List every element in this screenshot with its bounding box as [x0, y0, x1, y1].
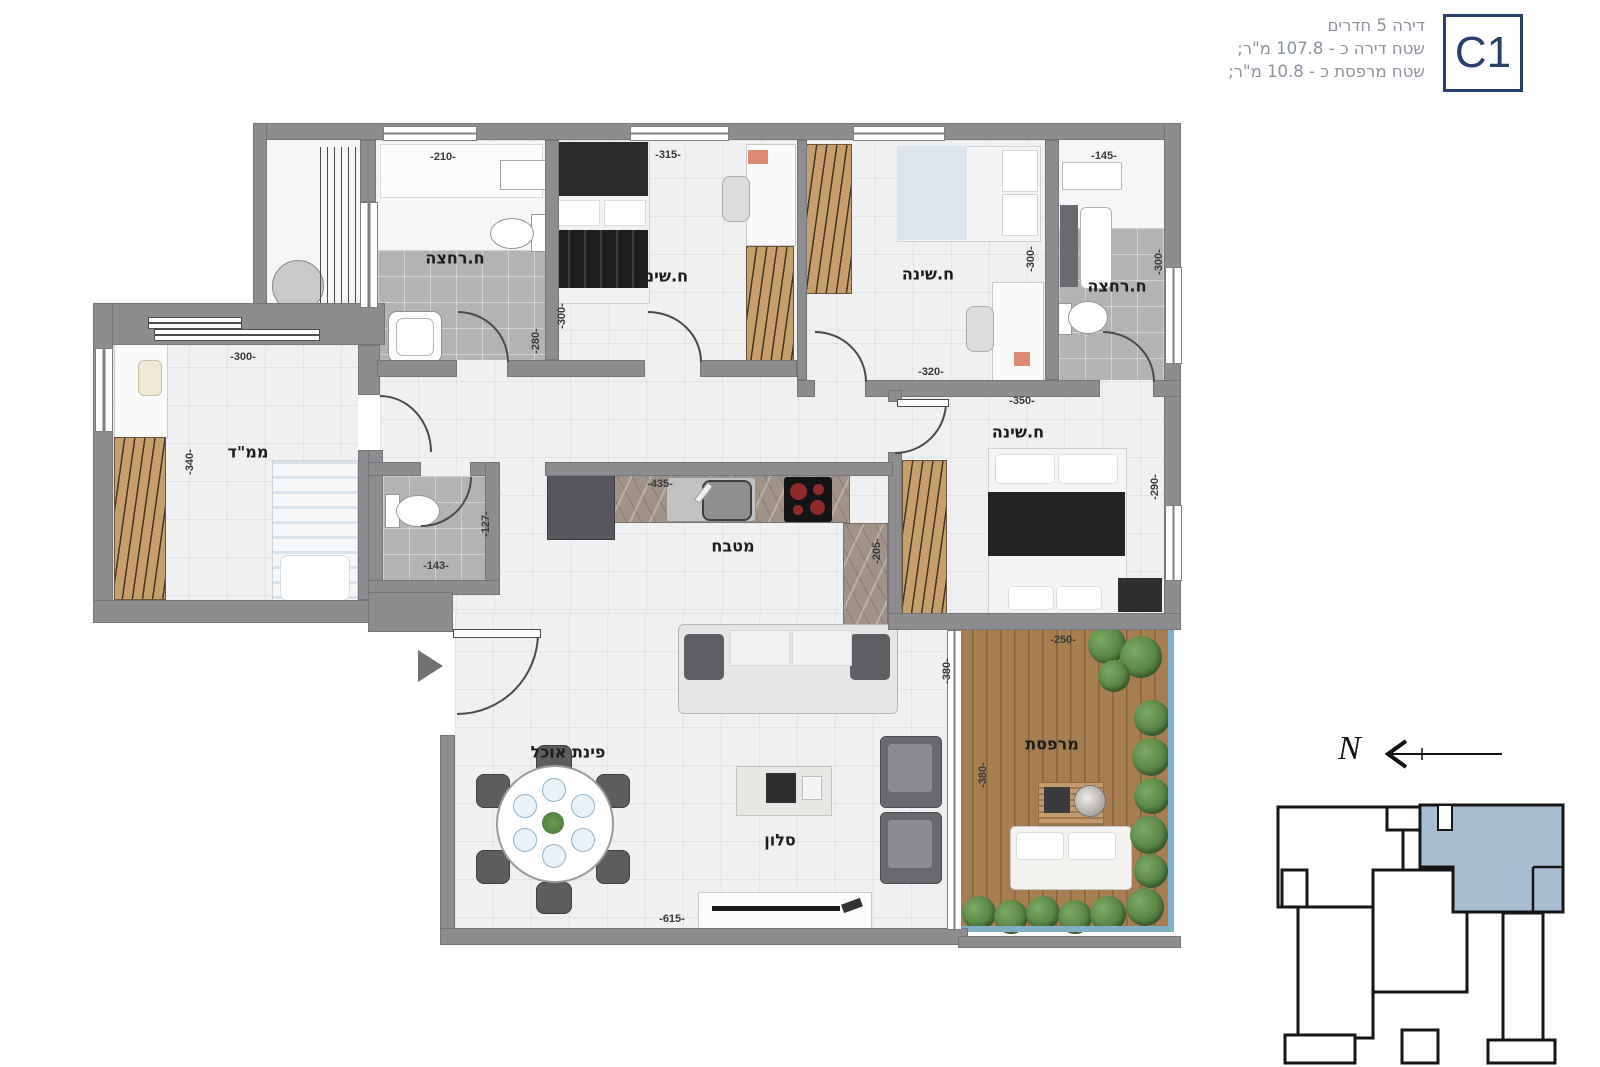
bathroom-cabinet	[1060, 205, 1078, 287]
wall	[797, 380, 815, 397]
armchair-cushion	[888, 820, 932, 868]
toilet	[490, 218, 534, 249]
room-label-living: סלון	[764, 831, 796, 850]
sofa-pillow	[850, 634, 890, 680]
room-label-bed2: ח.שינה	[902, 265, 954, 284]
room-label-mamad: ממ"ד	[228, 443, 269, 462]
tray	[766, 773, 796, 803]
fridge	[547, 473, 615, 540]
desk-accessory	[1014, 352, 1030, 366]
dim-bed1-width: -315-	[655, 149, 681, 161]
burner	[810, 500, 825, 515]
sink	[500, 160, 546, 190]
shower-tray	[396, 318, 434, 356]
sliding-window-pane	[148, 317, 242, 329]
room-label-bed1: ח.שינה	[636, 267, 688, 286]
plate	[542, 844, 566, 868]
room-label-bath1: ח.רחצה	[425, 249, 484, 268]
unit-code-badge: C1	[1443, 14, 1523, 92]
plate	[571, 828, 595, 852]
bed-headboard	[552, 142, 648, 196]
wall	[1153, 380, 1181, 397]
pillow	[1008, 586, 1054, 610]
window	[853, 126, 945, 141]
balcony-railing	[958, 926, 1174, 932]
dim-mamad-height: -340-	[184, 449, 196, 475]
sink	[1062, 162, 1122, 190]
wall	[545, 462, 893, 476]
plan-header: דירה 5 חדרים שטח דירה כ - 107.8 מ"ר; שטח…	[1020, 14, 1425, 83]
dim-wc-height: -127-	[480, 511, 492, 537]
dining-chair	[536, 882, 572, 914]
shaft-hatch	[320, 147, 358, 305]
wardrobe	[114, 437, 166, 600]
book	[802, 776, 822, 800]
dim-living-width: -615-	[659, 913, 685, 925]
apartment-area-text: שטח דירה כ - 107.8 מ"ר;	[1020, 37, 1425, 60]
wall	[377, 360, 457, 377]
outdoor-cushion	[1068, 832, 1116, 860]
centerpiece-plant	[542, 812, 564, 834]
north-letter: N	[1338, 730, 1361, 768]
dim-living-height: -380-	[941, 658, 953, 684]
wall	[360, 140, 376, 202]
room-label-balcony: מרפסת	[1025, 735, 1079, 754]
wall	[888, 613, 1181, 630]
wardrobe	[746, 246, 794, 376]
dim-kitchen-width: -435-	[647, 478, 673, 490]
room-label-master: ח.שינה	[992, 423, 1044, 442]
pillow	[280, 555, 350, 601]
armchair-cushion	[888, 744, 932, 792]
sofa-cushion	[730, 630, 790, 666]
door-leaf-entry	[453, 629, 541, 638]
pillow	[1056, 586, 1102, 610]
outdoor-cushion	[1016, 832, 1064, 860]
pillow	[1002, 150, 1038, 192]
dim-wc-width: -143-	[423, 560, 449, 572]
wall	[253, 123, 267, 315]
wardrobe	[806, 144, 852, 294]
window-mamad	[95, 348, 113, 432]
toilet	[1068, 301, 1108, 334]
pillow	[995, 454, 1055, 484]
plant	[1132, 738, 1170, 776]
entry-arrow-icon	[418, 650, 443, 682]
wall	[507, 360, 645, 377]
dim-bath1-width: -210-	[430, 151, 456, 163]
key-plan-graphic	[1270, 795, 1570, 1067]
floor-plan-sheet: דירה 5 חדרים שטח דירה כ - 107.8 מ"ר; שטח…	[0, 0, 1600, 1067]
wall	[700, 360, 797, 377]
wardrobe	[902, 460, 947, 625]
wall	[958, 936, 1181, 948]
wall	[440, 735, 455, 945]
sofa-cushion	[792, 630, 852, 666]
dim-bed2-height: -300-	[1025, 246, 1037, 272]
desk	[992, 282, 1044, 382]
window	[630, 126, 729, 141]
burner	[813, 484, 824, 495]
unit-code: C1	[1455, 28, 1511, 78]
pillow	[604, 200, 646, 226]
chair	[722, 176, 750, 222]
sofa-pillow	[684, 634, 724, 680]
dim-kitchen-height: -205-	[871, 538, 883, 564]
plate	[513, 828, 537, 852]
wall	[368, 592, 453, 632]
tv	[712, 906, 840, 911]
wall	[440, 928, 968, 945]
dim-master-height: -290-	[1149, 474, 1161, 500]
plate	[513, 794, 537, 818]
chair	[966, 306, 994, 352]
plant	[1134, 854, 1168, 888]
tray	[1044, 787, 1070, 813]
room-label-kitchen: מטבח	[711, 537, 754, 556]
burner	[793, 505, 803, 515]
dim-balcony-height: -380-	[977, 762, 989, 788]
dim-bath2-width: -145-	[1091, 150, 1117, 162]
nightstand	[1118, 578, 1162, 612]
room-label-dining: פינת אוכל	[531, 743, 606, 762]
plate	[542, 778, 566, 802]
dim-bed1-height: -300-	[556, 303, 568, 329]
window	[360, 202, 378, 308]
blanket	[897, 146, 967, 240]
wall	[1045, 140, 1059, 380]
cooktop	[784, 477, 832, 522]
dim-mamad-width: -300-	[230, 351, 256, 363]
pillow	[1058, 454, 1118, 484]
balcony-railing	[1168, 630, 1174, 932]
key-plan	[1270, 795, 1570, 1067]
desk-accessory	[748, 150, 768, 164]
dim-bed2-width: -320-	[918, 366, 944, 378]
side-table-top	[1074, 785, 1106, 817]
door-leaf-master	[897, 399, 949, 407]
wall	[797, 140, 807, 380]
wall-mamad	[93, 600, 385, 623]
sliding-window-pane	[154, 329, 320, 341]
plant	[1126, 888, 1164, 926]
wall	[368, 462, 421, 476]
window	[1165, 267, 1182, 364]
dim-master-width: -350-	[1009, 395, 1035, 407]
plant	[1134, 778, 1170, 814]
window	[383, 126, 477, 141]
plant	[1134, 700, 1170, 736]
room-label-bath2: ח.רחצה	[1087, 277, 1146, 296]
wall	[888, 452, 902, 630]
window	[1165, 505, 1182, 581]
plate	[571, 794, 595, 818]
burner	[790, 483, 807, 500]
plant	[1098, 660, 1130, 692]
blanket	[552, 230, 648, 288]
balcony-area-text: שטח מרפסת כ - 10.8 מ"ר;	[1020, 60, 1425, 83]
north-arrow: N	[1330, 728, 1510, 776]
chair	[138, 360, 162, 396]
pillow	[1002, 194, 1038, 236]
plant	[1130, 816, 1168, 854]
dim-bath1-height: -280-	[530, 328, 542, 354]
apartment-type-text: דירה 5 חדרים	[1020, 14, 1425, 37]
dim-bath2-height: -300-	[1153, 249, 1165, 275]
plant	[1026, 896, 1060, 930]
dim-balcony-width: -250-	[1050, 634, 1076, 646]
plant	[962, 896, 996, 930]
blanket	[988, 492, 1125, 556]
pillow	[558, 200, 600, 226]
